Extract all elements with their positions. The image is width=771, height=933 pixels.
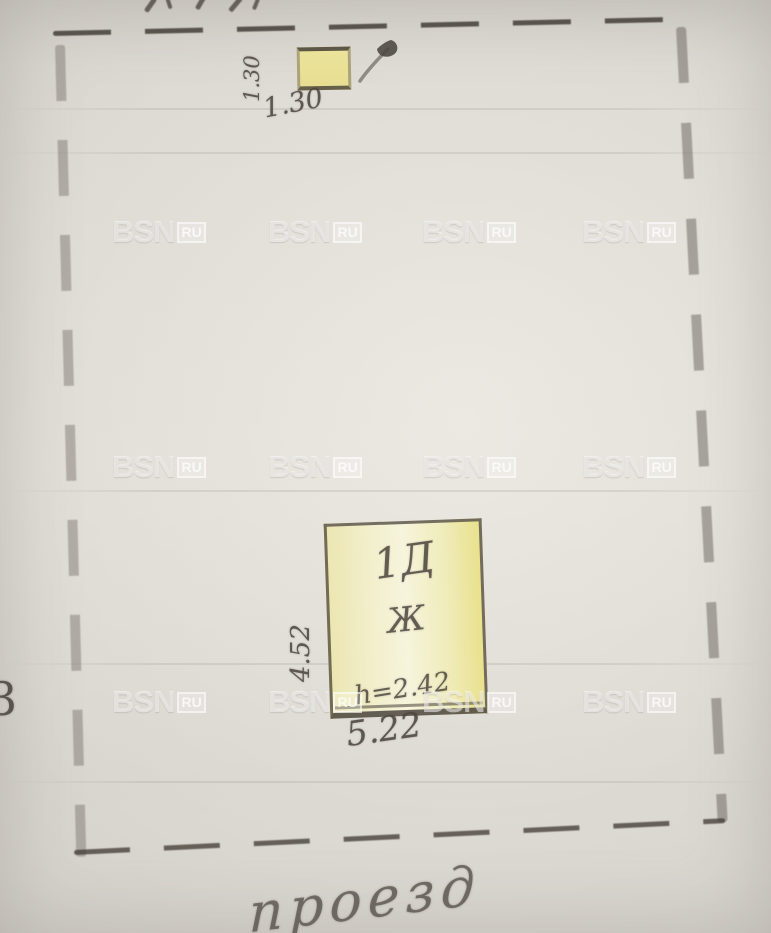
bsn-watermark-tld: RU <box>647 222 675 243</box>
bsn-watermark-brand: BSN <box>422 449 484 485</box>
outbuilding-bottom-dimension: 1.30 <box>261 83 326 125</box>
driveway-caption: проезд <box>248 853 481 933</box>
bsn-watermark: BSNRU <box>268 214 362 250</box>
bsn-watermark-tld: RU <box>647 457 675 478</box>
bsn-watermark: BSNRU <box>112 214 206 250</box>
cutoff-stroke <box>195 0 206 10</box>
bsn-watermark: BSNRU <box>422 214 516 250</box>
building-rectangle: 1Д Ж h=2.42 <box>324 518 489 718</box>
cutoff-stroke <box>228 0 243 13</box>
paper-crease <box>0 781 771 783</box>
paper-crease <box>0 152 771 154</box>
paper-crease <box>0 490 771 492</box>
left-edge-mark: 3 <box>0 672 17 726</box>
flag-mark-icon <box>352 34 406 88</box>
bsn-watermark-brand: BSN <box>582 684 644 720</box>
bsn-watermark-brand: BSN <box>112 214 174 250</box>
bsn-watermark-tld: RU <box>333 222 361 243</box>
bsn-watermark: BSNRU <box>268 449 362 485</box>
bsn-watermark-tld: RU <box>647 692 675 713</box>
outbuilding-left-dimension: 1.30 <box>240 22 264 102</box>
plan-photo: 1.30 1.30 1Д Ж h=2.42 4.52 5.22 3 проезд… <box>0 0 771 933</box>
plot-boundary-left <box>55 45 86 857</box>
bsn-watermark-tld: RU <box>487 222 515 243</box>
bsn-watermark-tld: RU <box>177 457 205 478</box>
bsn-watermark-brand: BSN <box>582 449 644 485</box>
bsn-watermark-brand: BSN <box>112 684 174 720</box>
bsn-watermark: BSNRU <box>422 449 516 485</box>
bsn-watermark-tld: RU <box>333 457 361 478</box>
cutoff-stroke <box>144 0 157 13</box>
bsn-watermark-tld: RU <box>487 692 515 713</box>
building-letter: Ж <box>328 592 483 648</box>
cutoff-stroke <box>252 0 260 10</box>
building-litera: 1Д <box>325 526 482 596</box>
bsn-watermark: BSNRU <box>582 684 676 720</box>
bsn-watermark-brand: BSN <box>422 214 484 250</box>
bsn-watermark-tld: RU <box>177 692 205 713</box>
bsn-watermark: BSNRU <box>582 449 676 485</box>
bsn-watermark: BSNRU <box>112 684 206 720</box>
paper-crease <box>0 108 771 110</box>
bsn-watermark-brand: BSN <box>582 214 644 250</box>
bsn-watermark-brand: BSN <box>268 449 330 485</box>
bsn-watermark: BSNRU <box>582 214 676 250</box>
bsn-watermark-brand: BSN <box>268 684 330 720</box>
building-left-dimension: 4.52 <box>286 542 316 682</box>
bsn-watermark-brand: BSN <box>268 214 330 250</box>
bsn-watermark-tld: RU <box>177 222 205 243</box>
bsn-watermark: BSNRU <box>112 449 206 485</box>
cutoff-stroke <box>165 0 172 9</box>
outbuilding-square <box>297 47 352 91</box>
bsn-watermark-tld: RU <box>487 457 515 478</box>
plot-boundary-bottom <box>74 818 725 855</box>
plot-boundary-right <box>676 27 728 822</box>
bsn-watermark-brand: BSN <box>112 449 174 485</box>
